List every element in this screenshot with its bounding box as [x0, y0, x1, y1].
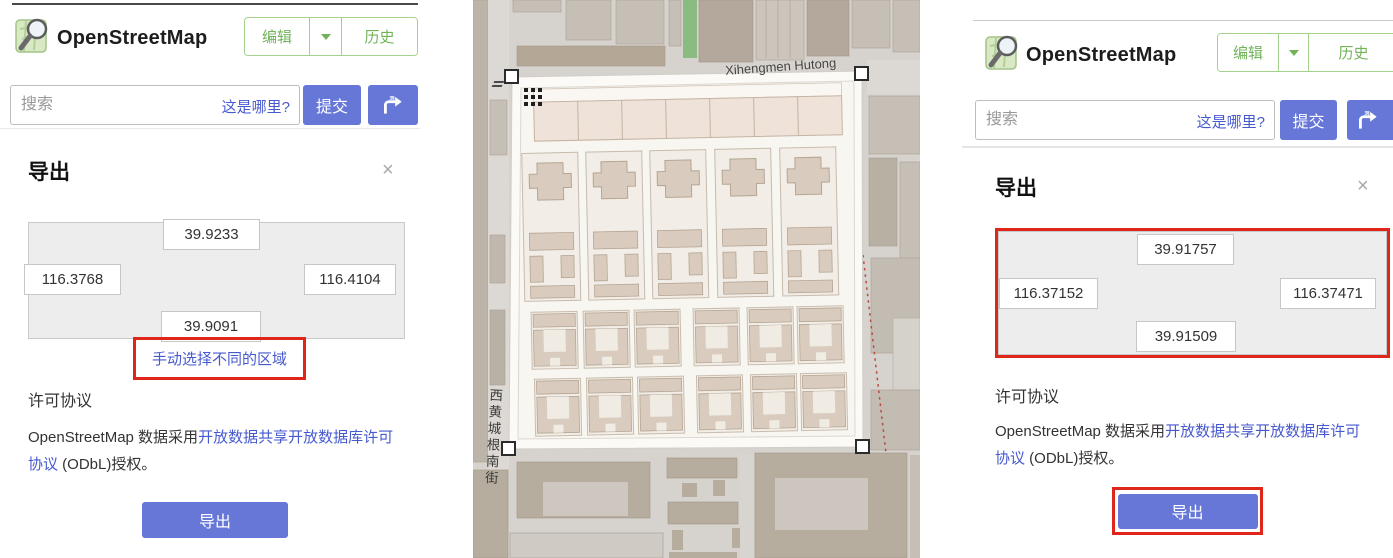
history-button[interactable]: 历史 — [341, 18, 417, 55]
search-submit-button[interactable]: 提交 — [303, 85, 361, 125]
directions-button[interactable] — [1347, 100, 1393, 140]
nav-button-group: 编辑 历史 — [1217, 33, 1393, 72]
export-button[interactable]: 导出 — [1118, 494, 1258, 529]
osm-logo[interactable] — [984, 32, 1024, 74]
where-is-this-link[interactable]: 这是哪里? — [1197, 111, 1265, 132]
bbox-east-input[interactable] — [1280, 278, 1376, 309]
dot — [531, 95, 535, 99]
search-box: 这是哪里? — [975, 100, 1275, 140]
selection-handle-nw[interactable] — [504, 69, 519, 84]
screenshot-composite: OpenStreetMap 编辑 历史 这是哪里? 提交 导出 × 手动选择不 — [0, 0, 1393, 558]
chevron-down-icon — [321, 34, 331, 40]
edit-button[interactable]: 编辑 — [1218, 34, 1278, 71]
dot — [524, 102, 528, 106]
dot — [538, 88, 542, 92]
dot — [538, 102, 542, 106]
license-text: OpenStreetMap 数据采用开放数据共享开放数据库许可协议 (ODbL)… — [28, 424, 396, 478]
search-submit-button[interactable]: 提交 — [1280, 100, 1337, 140]
export-panel-title: 导出 — [995, 172, 1037, 202]
map[interactable]: Xihengmen Hutong 西黄城根南街 — [473, 0, 920, 558]
directions-icon — [380, 92, 406, 118]
license-heading: 许可协议 — [995, 383, 1059, 407]
directions-icon — [1355, 107, 1381, 133]
directions-button[interactable] — [368, 85, 418, 125]
export-button[interactable]: 导出 — [142, 502, 288, 538]
edit-button[interactable]: 编辑 — [245, 18, 309, 55]
close-icon[interactable]: × — [1357, 176, 1369, 196]
annotation-box-manual-select: 手动选择不同的区域 — [133, 337, 306, 380]
selection-handle-se[interactable] — [855, 439, 870, 454]
dot — [531, 102, 535, 106]
osm-logo[interactable] — [14, 15, 54, 57]
license-suffix: (ODbL)授权。 — [1025, 450, 1123, 467]
where-is-this-link[interactable]: 这是哪里? — [222, 96, 290, 117]
header-separator — [962, 146, 1393, 148]
dot — [524, 88, 528, 92]
manual-select-link[interactable]: 手动选择不同的区域 — [136, 340, 303, 377]
nav-button-group: 编辑 历史 — [244, 17, 418, 56]
osm-logo-graphic — [14, 15, 54, 57]
edit-dropdown-button[interactable] — [309, 18, 341, 55]
bbox-north-input[interactable] — [1137, 234, 1234, 265]
drag-handle-dots[interactable] — [524, 88, 545, 109]
export-panel-title: 导出 — [28, 156, 70, 186]
brand-title[interactable]: OpenStreetMap — [1026, 44, 1176, 67]
bbox-south-input[interactable] — [1136, 321, 1236, 352]
brand-title[interactable]: OpenStreetMap — [57, 27, 207, 50]
bbox-west-input[interactable] — [999, 278, 1098, 309]
bbox-west-input[interactable] — [24, 264, 121, 295]
bbox-east-input[interactable] — [304, 264, 396, 295]
close-icon[interactable]: × — [382, 160, 394, 180]
edit-dropdown-button[interactable] — [1278, 34, 1308, 71]
license-prefix: OpenStreetMap 数据采用 — [995, 423, 1165, 440]
chevron-down-icon — [1289, 50, 1299, 56]
header-separator — [0, 128, 420, 129]
bbox-north-input[interactable] — [163, 219, 260, 250]
license-prefix: OpenStreetMap 数据采用 — [28, 429, 198, 446]
dot — [538, 95, 542, 99]
license-suffix: (ODbL)授权。 — [58, 456, 156, 473]
top-border-line — [973, 20, 1393, 21]
dot — [531, 88, 535, 92]
dot — [524, 95, 528, 99]
top-border-line — [12, 3, 418, 5]
license-text: OpenStreetMap 数据采用开放数据共享开放数据库许可协议 (ODbL)… — [995, 418, 1369, 472]
osm-logo-graphic — [984, 32, 1024, 74]
map-graphics — [473, 0, 920, 558]
history-button[interactable]: 历史 — [1308, 34, 1393, 71]
selection-handle-sw[interactable] — [501, 441, 516, 456]
search-box: 这是哪里? — [10, 85, 300, 125]
selection-handle-ne[interactable] — [854, 66, 869, 81]
license-heading: 许可协议 — [28, 387, 92, 411]
annotation-box-export: 导出 — [1112, 487, 1263, 535]
osm-panel-right: OpenStreetMap 编辑 历史 这是哪里? 提交 导出 × — [962, 0, 1393, 558]
osm-panel-left: OpenStreetMap 编辑 历史 这是哪里? 提交 导出 × 手动选择不 — [0, 0, 420, 558]
